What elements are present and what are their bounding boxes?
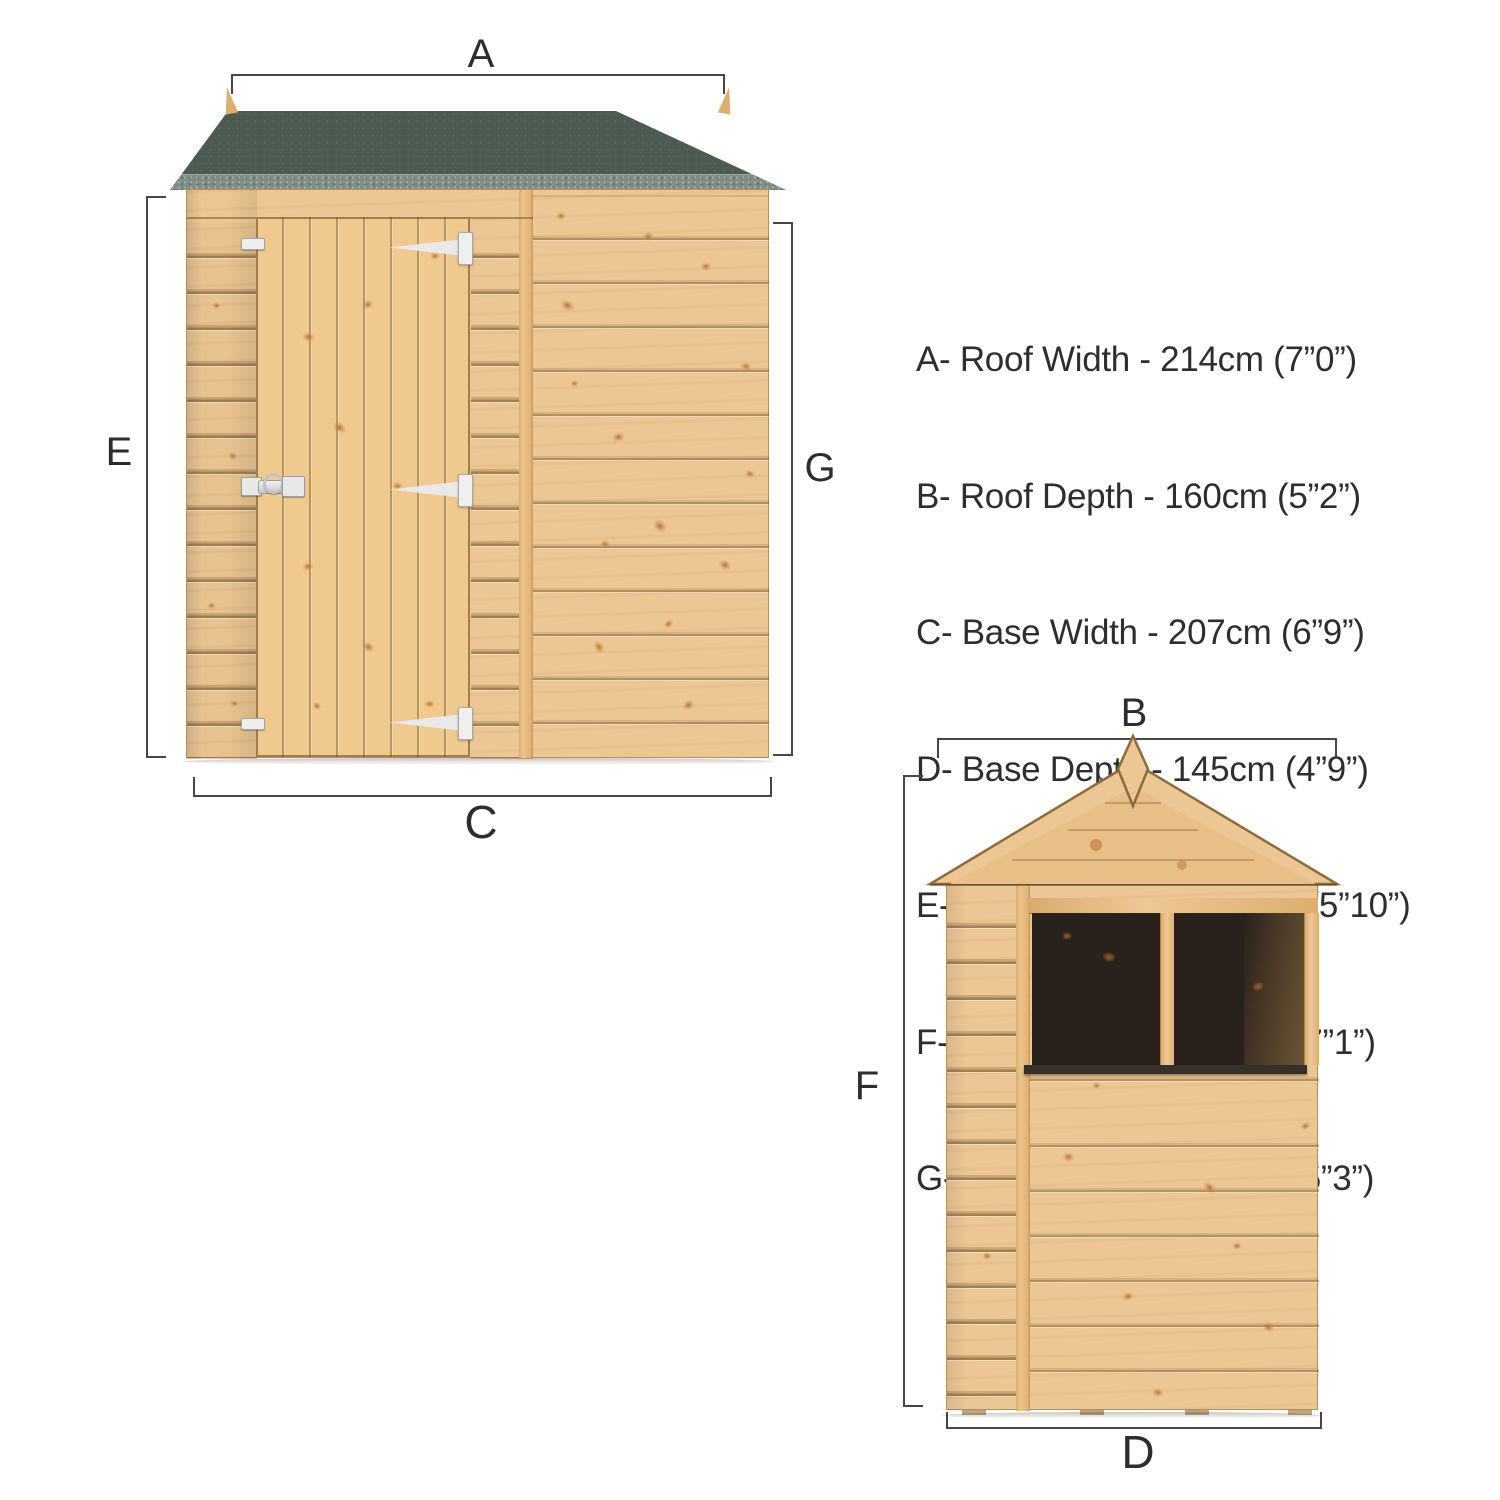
door-latch-bottom — [241, 718, 265, 730]
window-header — [1029, 898, 1318, 914]
window-pane-left — [1032, 913, 1160, 1065]
shed-dimension-diagram: A — [0, 0, 1500, 1500]
front-left-cladding-shade — [187, 190, 257, 759]
door-latch-top — [241, 238, 265, 250]
legend-item: C- Base Width - 207cm (6”9”) — [916, 610, 1411, 656]
dim-label-roof-height: F — [855, 1066, 879, 1106]
dim-label-base-depth: D — [1121, 1429, 1154, 1475]
side-corner-trim — [1016, 883, 1030, 1411]
side-main-cladding — [1030, 1075, 1319, 1411]
dim-bracket-eaves-height — [146, 196, 166, 758]
window-right-frame — [1304, 913, 1319, 1065]
dim-bracket-roof-height — [903, 775, 923, 1407]
dim-label-base-width: C — [464, 799, 497, 845]
front-right-cladding — [533, 190, 769, 759]
front-centre-trim — [519, 190, 533, 759]
roof-felt-edge — [170, 174, 786, 190]
dim-bracket-base-depth — [946, 1412, 1322, 1429]
dim-bracket-base-width — [193, 777, 772, 797]
legend-item: B- Roof Depth - 160cm (5”2”) — [916, 474, 1411, 520]
window-sill — [1024, 1065, 1307, 1074]
side-corner-shade — [947, 883, 1016, 1411]
legend-item: A- Roof Width - 214cm (7”0”) — [916, 337, 1411, 383]
dim-bracket-door-height — [773, 222, 793, 756]
window-interior-wall — [1244, 913, 1304, 1065]
dim-label-roof-width: A — [468, 34, 495, 74]
front-roof — [170, 111, 786, 190]
dim-bracket-roof-width — [231, 74, 725, 94]
front-mid-cladding — [471, 223, 519, 759]
window-pane-right — [1174, 913, 1304, 1065]
dim-label-door-height: G — [804, 448, 835, 488]
front-ground-shadow — [182, 758, 774, 765]
side-roof — [900, 725, 1360, 895]
dim-label-eaves-height: E — [106, 432, 133, 472]
